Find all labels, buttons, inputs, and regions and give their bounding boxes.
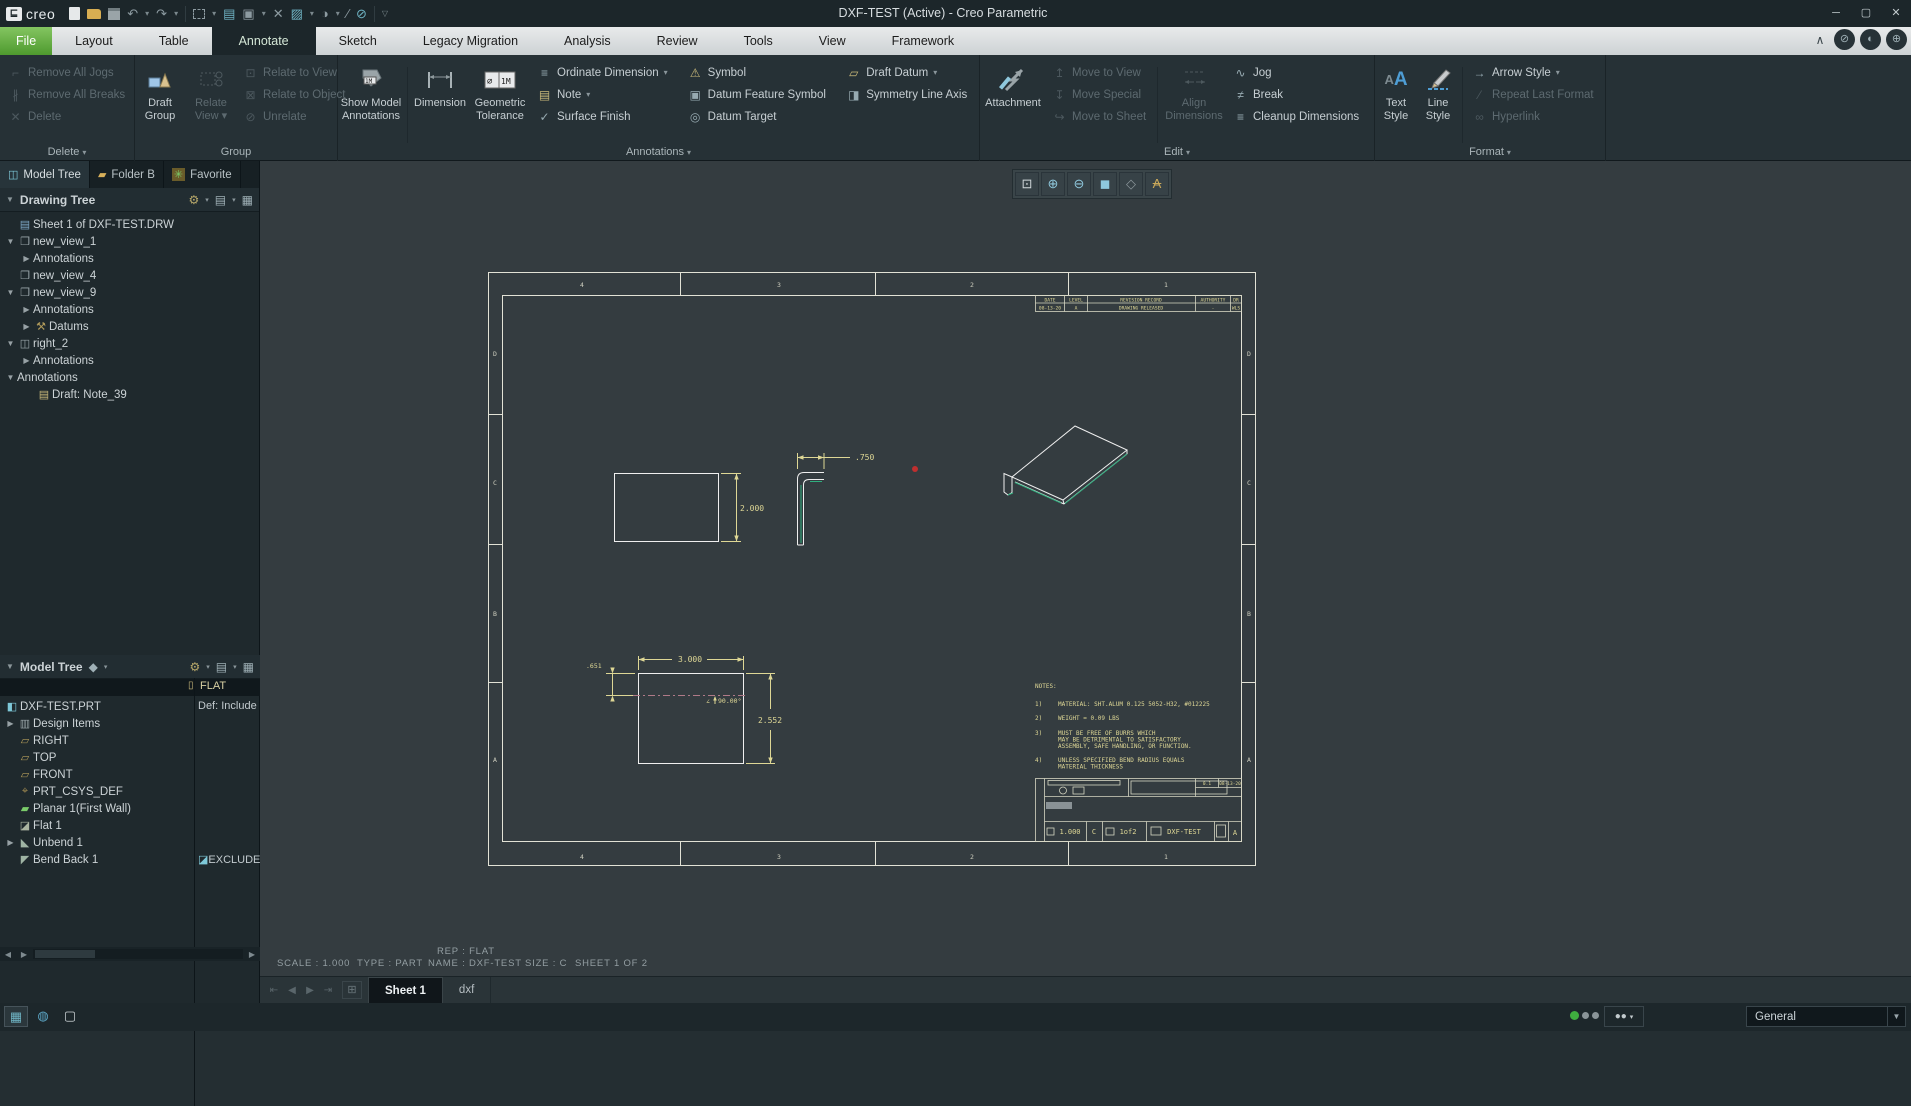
dimension-text[interactable]: 90.00° [718, 697, 741, 705]
svg-text:A: A [1233, 829, 1238, 837]
expander-icon[interactable]: ▼ [4, 373, 17, 382]
navigator-tab-model-tree[interactable]: ◫Model Tree [0, 161, 90, 188]
status-scale: SCALE : 1.000 [277, 958, 350, 969]
ribbon-group-annotations: 1M Show Model Annotations Dimension ⌀1M … [338, 55, 979, 161]
dimension-text[interactable]: 2.552 [758, 716, 782, 725]
tab-annotate[interactable]: Annotate [212, 27, 316, 55]
creo-logo-icon: ⊑ [6, 7, 22, 21]
tree-item-sheet[interactable]: ▤Sheet 1 of DXF-TEST.DRW [0, 216, 259, 233]
status-gray-icon [1582, 1012, 1589, 1019]
zone-label: C [1247, 479, 1251, 487]
selection-point [912, 466, 918, 472]
status-type: TYPE : PART [357, 958, 423, 969]
tree-item-annotations[interactable]: ▶Annotations [16, 352, 259, 369]
svg-text:WLS: WLS [1232, 306, 1241, 312]
tab-view[interactable]: View [796, 27, 869, 55]
group-label-edit[interactable]: Edit▾ [980, 146, 1374, 158]
tree-item-annotations-root[interactable]: ▼Annotations [0, 369, 259, 386]
revision-table: DATE LEVEL REVISION RECORD AUTHORITY DR … [1036, 296, 1242, 312]
symbol-icon: ⚠ [688, 66, 703, 80]
jog-button[interactable]: ∿Jog [1227, 62, 1373, 83]
tab-review[interactable]: Review [634, 27, 721, 55]
draft-datum-icon: ▱ [846, 66, 861, 80]
draft-group-icon [147, 63, 173, 97]
zone-label: 2 [970, 853, 974, 861]
navigator-tab-favorites[interactable]: ✳Favorite [164, 161, 241, 188]
remove-all-breaks-button: ∦Remove All Breaks [2, 84, 131, 105]
arrow-style-button[interactable]: →Arrow Style▾ [1466, 62, 1596, 83]
surface-finish-button[interactable]: ✓Surface Finish [531, 106, 682, 127]
status-bar: ▦ ◍ ▢ ●●▾ General ▼ [0, 1003, 1911, 1031]
datum-feature-symbol-icon: ▣ [688, 88, 703, 102]
symmetry-line-axis-icon: ◨ [846, 88, 861, 102]
align-dimensions-button: Align Dimensions [1161, 61, 1227, 122]
model-tree-header: ▼ Model Tree ◆▾ ⚙▾ ▤▾ ▦ [0, 655, 260, 679]
sheet-tab-dxf[interactable]: dxf [443, 977, 491, 1003]
browser-toggle-button[interactable]: ◍ [31, 1006, 55, 1027]
move-to-sheet-button: ↪Move to Sheet [1046, 106, 1154, 127]
zone-label: 4 [580, 281, 584, 289]
tree-item-view[interactable]: ▼❒new_view_9 [0, 284, 259, 301]
relate-view-icon [198, 63, 224, 97]
zone-label: D [493, 350, 497, 358]
relate-to-object-button: ⊠Relate to Object [237, 84, 351, 105]
expander-icon[interactable]: ▶ [20, 254, 33, 263]
tree-item-csys[interactable]: ⌖PRT_CSYS_DEF [0, 783, 260, 800]
planar-wall-icon: ▰ [17, 802, 33, 815]
tree-tools-icon[interactable]: ⚙ [189, 193, 200, 207]
attachment-icon [998, 63, 1028, 97]
hyperlink-icon: ∞ [1472, 110, 1487, 124]
svg-text:C: C [1092, 828, 1096, 836]
datum-feature-symbol-button[interactable]: ▣Datum Feature Symbol [682, 84, 841, 105]
hyperlink-button: ∞Hyperlink [1466, 106, 1596, 127]
delete-button: ✕Delete [2, 106, 131, 127]
tree-item-datums[interactable]: ▶⚒Datums [16, 318, 259, 335]
expander-icon[interactable]: ▶ [4, 719, 17, 728]
view-icon: ❒ [17, 286, 33, 299]
dimension-text[interactable]: .651 [586, 662, 602, 670]
save-icon[interactable] [108, 8, 120, 20]
drawing-sheet: 4 3 2 1 4 3 2 1 D C B A D C B A 2.000 [488, 272, 1256, 866]
show-model-annotations-icon: 1M [357, 63, 385, 97]
zone-label: A [493, 756, 497, 764]
dimension-icon [425, 63, 455, 97]
tree-list-icon[interactable]: ▤ [215, 193, 226, 207]
cleanup-dimensions-icon: ≡ [1233, 110, 1248, 124]
refit-button[interactable]: ⊡ [1015, 172, 1039, 196]
tab-sketch[interactable]: Sketch [316, 27, 400, 55]
svg-text:1M: 1M [501, 77, 511, 86]
drawing-view-top[interactable]: 2.000 [615, 474, 765, 542]
expander-icon[interactable]: ▼ [4, 237, 17, 246]
geometric-tolerance-icon: ⌀1M [483, 63, 517, 97]
text-style-icon: AA [1384, 63, 1407, 97]
tab-analysis[interactable]: Analysis [541, 27, 634, 55]
tree-settings-icon[interactable]: ▦ [242, 193, 253, 207]
exclude-icon: ◪ [198, 854, 208, 866]
scrollbar-thumb[interactable] [35, 950, 95, 958]
image-caret-icon[interactable]: ▾ [310, 9, 314, 18]
select-caret-icon[interactable]: ▾ [212, 9, 216, 18]
redo-icon[interactable]: ↷ [156, 6, 167, 22]
title-block: 0.1 08-13-20 1.000 C 1of2 DXF-TEST A [1036, 779, 1242, 842]
tree-item-plane-top[interactable]: ▱TOP [0, 749, 260, 766]
navigator-tabs: ◫Model Tree ▰Folder B ✳Favorite [0, 161, 259, 188]
drawing-view-isometric[interactable] [1004, 426, 1127, 504]
ribbon-group-delete: ⌐Remove All Jogs ∦Remove All Breaks ✕Del… [0, 55, 134, 161]
line-style-icon [1424, 63, 1452, 97]
datum-plane-icon: ▱ [17, 751, 33, 764]
relate-view-button: Relate View ▾ [185, 61, 237, 122]
svg-text:2): 2) [1035, 715, 1042, 722]
jog-icon: ∿ [1233, 66, 1248, 80]
open-file-icon[interactable] [87, 9, 101, 19]
shade-caret-icon[interactable]: ▾ [336, 9, 340, 18]
part-caret-icon[interactable]: ▾ [104, 663, 108, 671]
ribbon-group-format: AA Text Style Line Style →Arrow Style▾ ⁄… [1375, 55, 1605, 161]
align-dimensions-icon [1179, 63, 1209, 97]
status-name: NAME : DXF-TEST [428, 958, 522, 969]
model-tree-column-header[interactable]: ▯ FLAT [0, 679, 260, 696]
geometric-tolerance-button[interactable]: ⌀1M Geometric Tolerance [469, 61, 531, 122]
tree-item-unbend[interactable]: ▶◣Unbend 1 [0, 834, 260, 851]
repeat-last-format-button: ⁄Repeat Last Format [1466, 84, 1596, 105]
redo-caret-icon[interactable]: ▾ [174, 9, 178, 18]
binoculars-icon: ●● [1615, 1011, 1627, 1022]
remove-all-jogs-button: ⌐Remove All Jogs [2, 62, 131, 83]
scroll-right-icon[interactable]: ▶ [244, 950, 260, 959]
tree-tools-icon[interactable]: ⚙ [190, 660, 201, 674]
brand-name: creo [26, 6, 55, 22]
folder-icon: ▰ [98, 168, 106, 181]
surface-finish-icon: ✓ [537, 110, 552, 124]
navigator-panel: ◫Model Tree ▰Folder B ✳Favorite ▼ Drawin… [0, 161, 260, 1003]
next-sheet-icon[interactable]: ▶ [302, 985, 318, 996]
previous-sheet-icon[interactable]: ◀ [284, 985, 300, 996]
delete-icon: ✕ [8, 110, 23, 124]
draft-datum-button[interactable]: ▱Draft Datum▾ [840, 62, 979, 83]
show-model-annotations-button[interactable]: 1M Show Model Annotations [338, 61, 404, 122]
title-bar: ⊑ creo ↶▾ ↷▾ ▾ ▤ ▣▾ ✕ ▨▾ ◑▾ ⁄ ⊘ ▽ DXF-TE… [0, 0, 1911, 27]
close-window-icon[interactable]: ✕ [273, 6, 284, 22]
svg-text:LEVEL: LEVEL [1069, 298, 1083, 304]
tree-list-caret-icon[interactable]: ▾ [232, 196, 236, 204]
search-model-button[interactable]: ●●▾ [1604, 1006, 1644, 1027]
move-to-view-button: ↥Move to View [1046, 62, 1154, 83]
status-size: SIZE : C [525, 958, 567, 969]
repeat-last-format-icon: ⁄ [1472, 88, 1487, 102]
annotation-display-button[interactable]: A [1145, 172, 1169, 196]
remove-breaks-icon: ∦ [8, 88, 23, 102]
add-sheet-icon[interactable]: ⊞ [342, 981, 362, 999]
angle-mark: ∠ [706, 698, 710, 706]
customize-toolbar-icon[interactable]: ▽ [382, 9, 388, 18]
svg-text:08-13-20: 08-13-20 [1219, 781, 1241, 787]
bend-back-icon: ◤ [17, 853, 33, 866]
tab-layout[interactable]: Layout [52, 27, 136, 55]
view-icon: ❒ [17, 269, 33, 282]
break-button[interactable]: ≠Break [1227, 84, 1373, 105]
svg-text:1of2: 1of2 [1120, 828, 1137, 836]
zone-label: C [493, 479, 497, 487]
tree-item-flat[interactable]: ◪Flat 1 [0, 817, 260, 834]
zone-label: 3 [777, 281, 781, 289]
svg-text:4): 4) [1035, 757, 1042, 764]
navigator-tab-folder-browser[interactable]: ▰Folder B [90, 161, 164, 188]
find-icon[interactable]: ⊘ [356, 6, 367, 22]
expander-icon[interactable]: ▶ [20, 356, 33, 365]
zone-label: 3 [777, 853, 781, 861]
undo-icon[interactable]: ↶ [127, 6, 138, 22]
format-paint-icon[interactable]: ⁄ [347, 6, 349, 21]
relate-to-object-icon: ⊠ [243, 88, 258, 102]
dimension-button[interactable]: Dimension [411, 61, 469, 110]
chevron-down-icon: ▼ [1887, 1007, 1905, 1026]
sheet-tab-bar: ⇤ ◀ ▶ ⇥ ⊞ Sheet 1 dxf [260, 976, 1911, 1003]
unrelate-button: ⊘Unrelate [237, 106, 351, 127]
tree-item-annotations[interactable]: ▶Annotations [16, 250, 259, 267]
divider [1462, 67, 1463, 143]
dimension-text[interactable]: 2.000 [740, 504, 764, 513]
datum-plane-icon: ▱ [17, 734, 33, 747]
zone-label: 1 [1164, 281, 1168, 289]
svg-text:1): 1) [1035, 701, 1042, 708]
svg-text:1.000: 1.000 [1059, 828, 1080, 836]
zone-label: 4 [580, 853, 584, 861]
remove-jogs-icon: ⌐ [8, 66, 23, 80]
datum-target-icon: ◎ [688, 110, 703, 124]
collapse-icon[interactable]: ▼ [6, 195, 14, 204]
tree-item-view[interactable]: ❒new_view_4 [0, 267, 259, 284]
datum-plane-icon: ▱ [17, 768, 33, 781]
arrow-style-icon: → [1472, 66, 1487, 80]
dimension-text[interactable]: 3.000 [678, 655, 702, 664]
note-icon: ▤ [537, 88, 552, 102]
sheet-icon: ▤ [17, 218, 33, 231]
svg-text:3): 3) [1035, 730, 1042, 737]
scroll-right-icon[interactable]: ▶ [16, 950, 32, 959]
ribbon-group-edit: Attachment ↥Move to View ↧Move Special ↪… [980, 55, 1374, 161]
select-box-icon[interactable] [193, 9, 205, 19]
quick-access-toolbar: ↶▾ ↷▾ ▾ ▤ ▣▾ ✕ ▨▾ ◑▾ ⁄ ⊘ ▽ [69, 6, 388, 22]
navigator-toggle-button[interactable]: ▦ [4, 1006, 28, 1027]
move-to-sheet-icon: ↪ [1052, 110, 1067, 124]
expander-icon[interactable]: ▶ [4, 838, 17, 847]
tree-columns-icon[interactable]: ▦ [243, 660, 254, 674]
model-tree-cell-exclude: ◪EXCLUDE [198, 853, 260, 866]
tree-tools-caret-icon[interactable]: ▾ [206, 663, 210, 671]
scroll-left-icon[interactable]: ◀ [0, 950, 16, 959]
move-special-button: ↧Move Special [1046, 84, 1154, 105]
image-icon[interactable]: ▨ [291, 6, 303, 22]
zoom-out-button[interactable]: ⊖ [1067, 172, 1091, 196]
fullscreen-button[interactable]: ▢ [58, 1006, 82, 1027]
new-file-icon[interactable] [69, 7, 80, 20]
shade-icon[interactable]: ◑ [321, 6, 329, 21]
design-items-icon: ▥ [17, 717, 33, 730]
svg-text:NOTES:: NOTES: [1035, 683, 1057, 690]
last-sheet-icon[interactable]: ⇥ [320, 985, 336, 996]
tree-item-design-items[interactable]: ▶▥Design Items [0, 715, 260, 732]
status-indicator [1570, 1011, 1599, 1020]
view-icon: ❒ [17, 235, 33, 248]
viewport-toolbar: ⊡ ⊕ ⊖ ◼ ◇ A [1012, 169, 1172, 199]
divider [407, 67, 408, 143]
search-icon[interactable]: ⊘ [1834, 29, 1855, 50]
svg-text:0.1: 0.1 [1203, 781, 1211, 787]
expander-icon[interactable]: ▼ [4, 288, 17, 297]
svg-text:MATERIAL THICKNESS: MATERIAL THICKNESS [1058, 764, 1123, 771]
scrollbar-track[interactable] [33, 949, 243, 959]
group-label-annotations[interactable]: Annotations▾ [338, 146, 979, 158]
move-special-icon: ↧ [1052, 88, 1067, 102]
ribbon-tab-bar: File Layout Table Annotate Sketch Legacy… [0, 27, 1911, 55]
selection-filter-dropdown[interactable]: General ▼ [1746, 1006, 1906, 1027]
svg-text:DR: DR [1233, 298, 1239, 304]
drawing-notes[interactable]: NOTES: 1) MATERIAL: SHT.ALUM 0.125 5052-… [1035, 683, 1210, 771]
attachment-button[interactable]: Attachment [980, 61, 1046, 110]
zoom-in-button[interactable]: ⊕ [1041, 172, 1065, 196]
flat-state-icon: ▯ [188, 680, 194, 691]
svg-text:-: - [1212, 307, 1215, 312]
line-style-button[interactable]: Line Style [1417, 61, 1459, 122]
account-icon[interactable]: ⊕ [1886, 29, 1907, 50]
collapse-ribbon-icon[interactable]: ∧ [1811, 33, 1829, 47]
zone-label: A [1247, 756, 1251, 764]
svg-text:AUTHORITY: AUTHORITY [1201, 298, 1226, 304]
flat-icon: ◪ [17, 819, 33, 832]
move-to-view-icon: ↥ [1052, 66, 1067, 80]
ribbon: ⌐Remove All Jogs ∦Remove All Breaks ✕Del… [0, 55, 1911, 161]
undo-caret-icon[interactable]: ▾ [145, 9, 149, 18]
dimension-text[interactable]: .750 [855, 453, 874, 462]
model-tree-tab-icon: ◫ [8, 168, 18, 181]
status-sheet: SHEET 1 OF 2 [575, 958, 648, 969]
cleanup-dimensions-button[interactable]: ≡Cleanup Dimensions [1227, 106, 1373, 127]
datum-target-button[interactable]: ◎Datum Target [682, 106, 841, 127]
note-icon: ▤ [36, 388, 52, 401]
tree-item-plane-front[interactable]: ▱FRONT [0, 766, 260, 783]
tab-framework[interactable]: Framework [869, 27, 978, 55]
status-gray-icon [1592, 1012, 1599, 1019]
expander-icon[interactable]: ▶ [20, 322, 33, 331]
zone-label: D [1247, 350, 1251, 358]
drawing-tree-header: ▼ Drawing Tree ⚙▾ ▤▾ ▦ [0, 188, 259, 212]
drawing-view-profile[interactable]: .750 [798, 453, 875, 545]
sheet-tab-1[interactable]: Sheet 1 [368, 977, 443, 1003]
group-label-delete[interactable]: Delete▾ [0, 146, 134, 158]
tree-item-view[interactable]: ▼◫right_2 [0, 335, 259, 352]
unbend-icon: ◣ [17, 836, 33, 849]
sync-icon[interactable]: ◐ [1860, 29, 1881, 50]
ribbon-group-group: Draft Group Relate View ▾ ⊡Relate to Vie… [135, 55, 337, 161]
tab-table[interactable]: Table [136, 27, 212, 55]
draft-group-button[interactable]: Draft Group [135, 61, 185, 122]
close-button[interactable]: ✕ [1881, 0, 1911, 27]
note-button[interactable]: ▤Note▾ [531, 84, 682, 105]
expander-icon[interactable]: ▼ [4, 339, 17, 348]
divider [185, 6, 186, 22]
display-style-button[interactable]: ◼ [1093, 172, 1117, 196]
tab-legacy-migration[interactable]: Legacy Migration [400, 27, 541, 55]
divider [1605, 55, 1606, 161]
svg-text:⌀: ⌀ [487, 77, 493, 87]
svg-text:DRAWING RELEASED: DRAWING RELEASED [1119, 306, 1163, 312]
part-icon: ◧ [4, 700, 20, 713]
tree-tools-caret-icon[interactable]: ▾ [205, 196, 209, 204]
windows-caret-icon[interactable]: ▾ [262, 9, 266, 18]
symbol-button[interactable]: ⚠Symbol [682, 62, 841, 83]
tree-list-icon[interactable]: ▤ [216, 660, 227, 674]
tree-item-note[interactable]: ▤Draft: Note_39 [32, 386, 259, 403]
minimize-button[interactable]: ─ [1821, 0, 1851, 27]
svg-text:ASSEMBLY, SAFE HANDLING, OR FU: ASSEMBLY, SAFE HANDLING, OR FUNCTION. [1058, 743, 1192, 750]
break-icon: ≠ [1233, 88, 1248, 102]
status-green-icon [1570, 1011, 1579, 1020]
collapse-icon[interactable]: ▼ [6, 662, 14, 671]
regenerate-icon[interactable]: ▤ [223, 6, 235, 22]
zone-label: B [493, 610, 497, 618]
unrelate-icon: ⊘ [243, 110, 258, 124]
first-sheet-icon[interactable]: ⇤ [266, 985, 282, 996]
svg-text:A: A [1075, 306, 1078, 312]
svg-text:WEIGHT = 0.09 LBS: WEIGHT = 0.09 LBS [1058, 715, 1120, 722]
tree-item-view[interactable]: ▼❒new_view_1 [0, 233, 259, 250]
graphics-area[interactable]: ⊡ ⊕ ⊖ ◼ ◇ A 4 3 2 1 4 3 2 1 D C B A D [260, 161, 1911, 976]
projection-view-icon: ◫ [17, 337, 33, 350]
zone-label: B [1247, 610, 1251, 618]
coordinate-system-icon: ⌖ [17, 785, 33, 798]
favorites-icon: ✳ [172, 168, 185, 181]
svg-text:1M: 1M [365, 78, 373, 85]
ordinate-dimension-button[interactable]: ≡Ordinate Dimension▾ [531, 62, 682, 83]
app-logo: ⊑ creo [6, 6, 55, 22]
drawing-view-flat[interactable]: 3.000 2.552 .651 ∠ 90.00° [586, 655, 782, 764]
tree-item-planar-wall[interactable]: ▰Planar 1(First Wall) [0, 800, 260, 817]
window-title: DXF-TEST (Active) - Creo Parametric [839, 0, 1048, 27]
zone-label: 2 [970, 281, 974, 289]
group-label-group: Group [135, 146, 337, 158]
datum-display-button[interactable]: ◇ [1119, 172, 1143, 196]
svg-text:DATE: DATE [1044, 298, 1055, 304]
svg-text:REVISION RECORD: REVISION RECORD [1120, 298, 1162, 304]
group-label-format[interactable]: Format▾ [1375, 146, 1605, 158]
symmetry-line-axis-button[interactable]: ◨Symmetry Line Axis [840, 84, 979, 105]
tab-tools[interactable]: Tools [721, 27, 796, 55]
relate-to-view-button: ⊡Relate to View [237, 62, 351, 83]
tree-item-plane-right[interactable]: ▱RIGHT [0, 732, 260, 749]
windows-icon[interactable]: ▣ [242, 6, 254, 22]
part-icon: ◆ [89, 660, 98, 674]
tree-list-caret-icon[interactable]: ▾ [233, 663, 237, 671]
tab-file[interactable]: File [0, 27, 52, 55]
svg-text:08-13-20: 08-13-20 [1039, 306, 1061, 312]
datum-icon: ⚒ [33, 320, 49, 333]
ordinate-dimension-icon: ≡ [537, 66, 552, 80]
status-rep: REP : FLAT [437, 946, 495, 957]
divider [374, 6, 375, 22]
text-style-button[interactable]: AA Text Style [1375, 61, 1417, 122]
relate-to-view-icon: ⊡ [243, 66, 258, 80]
expander-icon[interactable]: ▶ [20, 305, 33, 314]
panel-horizontal-scrollbar[interactable]: ◀ ▶ ▶ [0, 947, 260, 961]
zone-label: 1 [1164, 853, 1168, 861]
model-tree-cell-value: Def: Include [198, 700, 257, 712]
svg-text:MATERIAL: SHT.ALUM 0.125 5052-: MATERIAL: SHT.ALUM 0.125 5052-H32, #0122… [1058, 701, 1210, 708]
maximize-button[interactable]: ▢ [1851, 0, 1881, 27]
tree-item-annotations[interactable]: ▶Annotations [16, 301, 259, 318]
